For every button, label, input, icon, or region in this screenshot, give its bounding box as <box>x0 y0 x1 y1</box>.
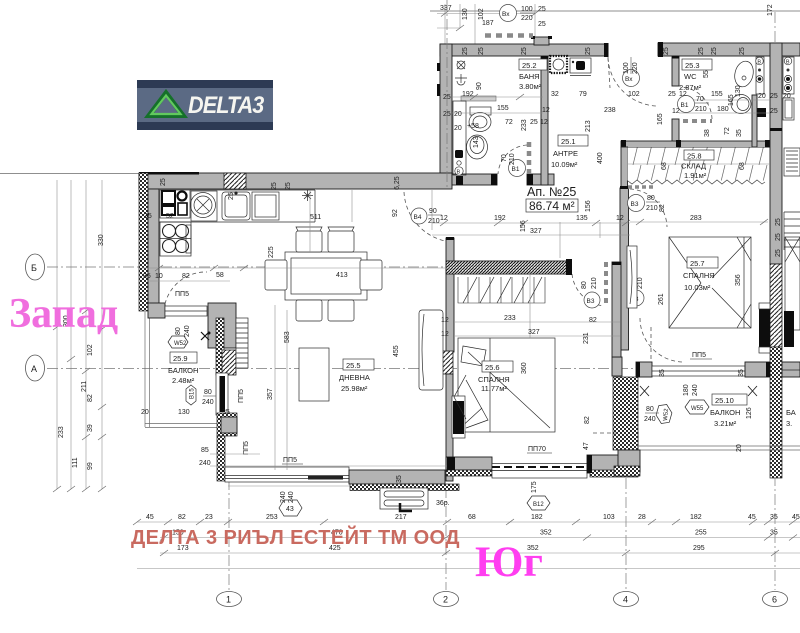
svg-text:52: 52 <box>166 213 174 220</box>
svg-text:B4: B4 <box>414 214 422 221</box>
svg-text:+58: +58 <box>467 123 479 130</box>
svg-text:12: 12 <box>540 119 548 126</box>
svg-text:231: 231 <box>583 332 590 344</box>
svg-text:211: 211 <box>81 381 88 392</box>
svg-text:25: 25 <box>538 6 546 13</box>
svg-text:238: 238 <box>604 107 616 114</box>
svg-text:Запад: Запад <box>9 291 118 337</box>
svg-text:35: 35 <box>396 475 403 483</box>
svg-text:352: 352 <box>540 530 552 537</box>
svg-text:35: 35 <box>770 514 778 521</box>
svg-text:70: 70 <box>696 96 704 103</box>
svg-text:B15: B15 <box>190 388 196 399</box>
svg-text:СПАЛНЯ: СПАЛНЯ <box>683 271 715 280</box>
svg-text:25: 25 <box>775 233 782 241</box>
svg-text:45: 45 <box>146 514 154 521</box>
svg-text:80: 80 <box>175 327 182 335</box>
svg-text:102: 102 <box>628 91 640 98</box>
svg-text:БАНЯ: БАНЯ <box>519 72 540 81</box>
svg-text:180: 180 <box>717 106 729 113</box>
svg-text:СПАЛНЯ: СПАЛНЯ <box>478 375 510 384</box>
svg-text:175: 175 <box>531 481 538 493</box>
svg-text:82: 82 <box>659 204 666 212</box>
svg-text:25.8: 25.8 <box>687 152 702 161</box>
svg-text:337: 337 <box>440 5 452 12</box>
svg-text:43: 43 <box>286 506 294 513</box>
svg-text:20: 20 <box>736 444 743 452</box>
svg-text:B1: B1 <box>512 166 520 173</box>
svg-text:511: 511 <box>310 214 321 221</box>
svg-text:192: 192 <box>462 91 474 98</box>
svg-text:82: 82 <box>182 273 190 280</box>
svg-text:165: 165 <box>728 94 735 106</box>
svg-text:W52: W52 <box>174 341 187 347</box>
svg-text:3.80м²: 3.80м² <box>519 82 542 91</box>
svg-text:210: 210 <box>509 153 516 165</box>
svg-text:1: 1 <box>226 595 231 605</box>
svg-text:35: 35 <box>659 369 666 377</box>
svg-text:25: 25 <box>585 47 592 55</box>
svg-text:ПП5: ПП5 <box>692 352 706 359</box>
svg-text:155: 155 <box>711 91 723 98</box>
svg-text:55: 55 <box>703 70 710 78</box>
svg-text:25.9: 25.9 <box>173 354 188 363</box>
svg-text:ДЕЛТА 3 РИЪЛ ЕСТЕЙТ ТМ ООД: ДЕЛТА 3 РИЪЛ ЕСТЕЙТ ТМ ООД <box>131 525 460 549</box>
svg-text:B1: B1 <box>681 102 689 109</box>
svg-text:35: 35 <box>770 530 778 537</box>
svg-text:80: 80 <box>646 406 654 413</box>
svg-text:233: 233 <box>504 315 516 322</box>
svg-text:155: 155 <box>497 105 509 112</box>
svg-text:А: А <box>31 364 37 374</box>
svg-text:25: 25 <box>160 178 167 186</box>
svg-text:25: 25 <box>521 47 528 55</box>
svg-text:240: 240 <box>184 325 191 337</box>
svg-text:12: 12 <box>616 215 624 222</box>
svg-text:182: 182 <box>690 514 702 521</box>
svg-text:СКЛАД: СКЛАД <box>681 162 706 171</box>
svg-text:99: 99 <box>87 462 94 470</box>
svg-text:28: 28 <box>638 514 646 521</box>
svg-text:35: 35 <box>144 213 152 220</box>
svg-text:12: 12 <box>441 317 449 324</box>
svg-text:20: 20 <box>454 125 462 132</box>
svg-text:25.98м²: 25.98м² <box>341 384 368 393</box>
svg-text:ПП5: ПП5 <box>283 457 297 464</box>
svg-text:72: 72 <box>505 119 513 126</box>
svg-text:130: 130 <box>178 409 190 416</box>
svg-text:220: 220 <box>632 62 639 74</box>
svg-text:Б: Б <box>31 263 37 273</box>
svg-text:583: 583 <box>284 331 291 343</box>
svg-text:38: 38 <box>704 129 711 137</box>
svg-text:25.2: 25.2 <box>522 61 537 70</box>
svg-text:39: 39 <box>87 424 94 432</box>
svg-text:25: 25 <box>711 47 718 55</box>
svg-text:47: 47 <box>583 442 590 450</box>
svg-text:25: 25 <box>770 108 778 115</box>
svg-text:210: 210 <box>591 277 598 289</box>
svg-text:B: B <box>786 59 790 65</box>
svg-text:143: 143 <box>473 136 480 148</box>
svg-text:82: 82 <box>589 317 597 324</box>
svg-text:10.03м²: 10.03м² <box>684 283 711 292</box>
svg-text:25: 25 <box>538 21 546 28</box>
svg-text:400: 400 <box>597 152 604 164</box>
svg-text:25: 25 <box>285 182 292 190</box>
svg-text:210: 210 <box>695 106 707 113</box>
svg-text:102: 102 <box>478 8 485 20</box>
svg-text:БА: БА <box>786 408 796 417</box>
svg-text:283: 283 <box>690 215 702 222</box>
svg-text:111: 111 <box>72 457 79 468</box>
svg-text:36р.: 36р. <box>436 500 450 507</box>
svg-text:220: 220 <box>521 15 533 22</box>
svg-text:92: 92 <box>392 209 399 217</box>
svg-text:217: 217 <box>395 514 407 521</box>
svg-text:БАЛКОН: БАЛКОН <box>710 408 740 417</box>
svg-text:25.6: 25.6 <box>485 363 500 372</box>
svg-text:12: 12 <box>440 215 448 222</box>
svg-text:80: 80 <box>647 195 655 202</box>
svg-text:БАЛКОН: БАЛКОН <box>168 366 198 375</box>
svg-text:210: 210 <box>637 277 644 289</box>
svg-text:240: 240 <box>288 491 295 503</box>
svg-text:25.1: 25.1 <box>561 137 576 146</box>
svg-text:182: 182 <box>531 514 543 521</box>
svg-text:100: 100 <box>623 62 630 74</box>
svg-text:240: 240 <box>644 416 656 423</box>
svg-text:72: 72 <box>724 127 731 135</box>
svg-text:25: 25 <box>663 47 670 55</box>
svg-text:10: 10 <box>155 273 163 280</box>
svg-text:35: 35 <box>143 273 151 280</box>
svg-text:327: 327 <box>528 329 540 336</box>
svg-text:11.77м²: 11.77м² <box>481 384 507 393</box>
svg-text:240: 240 <box>202 399 214 406</box>
svg-text:213: 213 <box>585 120 592 132</box>
svg-text:130: 130 <box>735 85 742 97</box>
svg-text:3.: 3. <box>786 419 792 428</box>
svg-text:25: 25 <box>478 47 485 55</box>
svg-text:455: 455 <box>393 345 400 357</box>
svg-text:WC: WC <box>684 72 697 81</box>
svg-text:68: 68 <box>468 514 476 521</box>
svg-text:240: 240 <box>199 460 211 467</box>
svg-text:295: 295 <box>693 545 705 552</box>
svg-text:6,25: 6,25 <box>394 176 401 190</box>
svg-text:165: 165 <box>657 113 664 125</box>
svg-text:210: 210 <box>428 218 440 225</box>
svg-text:240: 240 <box>280 491 287 503</box>
svg-text:210: 210 <box>646 205 658 212</box>
svg-text:25: 25 <box>228 192 235 200</box>
svg-text:B: B <box>757 59 761 65</box>
svg-text:12: 12 <box>679 91 687 98</box>
svg-text:25: 25 <box>668 91 676 98</box>
svg-text:240: 240 <box>692 384 699 396</box>
svg-text:ПП5: ПП5 <box>238 389 245 403</box>
svg-text:20: 20 <box>141 409 149 416</box>
svg-text:35: 35 <box>736 129 743 137</box>
svg-text:102: 102 <box>87 344 94 356</box>
svg-text:DELTA3: DELTA3 <box>188 91 265 118</box>
svg-text:233: 233 <box>58 426 65 438</box>
svg-text:360: 360 <box>521 362 528 374</box>
svg-text:23: 23 <box>205 514 213 521</box>
svg-text:25: 25 <box>770 93 778 100</box>
svg-text:70: 70 <box>501 154 508 162</box>
svg-text:АНТРЕ: АНТРЕ <box>553 149 578 158</box>
svg-text:12: 12 <box>542 107 550 114</box>
svg-text:90: 90 <box>476 82 483 90</box>
svg-text:B3: B3 <box>587 298 595 305</box>
svg-text:12: 12 <box>672 108 680 115</box>
svg-text:100: 100 <box>521 6 533 13</box>
svg-text:25: 25 <box>739 47 746 55</box>
svg-text:68: 68 <box>739 162 746 170</box>
svg-text:35: 35 <box>738 369 745 377</box>
svg-text:Вх: Вх <box>625 76 633 83</box>
svg-text:ПП5: ПП5 <box>175 291 189 298</box>
svg-text:6: 6 <box>772 595 777 605</box>
svg-text:ПП5: ПП5 <box>243 441 250 455</box>
svg-text:80: 80 <box>204 389 212 396</box>
svg-text:156: 156 <box>585 200 592 212</box>
svg-text:ПП70: ПП70 <box>528 446 546 453</box>
svg-text:B: B <box>457 170 461 176</box>
svg-text:32: 32 <box>551 91 559 98</box>
svg-text:192: 192 <box>494 215 506 222</box>
svg-text:25: 25 <box>775 218 782 226</box>
svg-text:10.09м²: 10.09м² <box>551 160 578 169</box>
svg-text:Ап. №25: Ап. №25 <box>527 185 576 199</box>
svg-text:327: 327 <box>530 228 542 235</box>
svg-text:126: 126 <box>746 407 753 419</box>
svg-text:85: 85 <box>201 447 209 454</box>
svg-text:Юг: Юг <box>475 539 543 586</box>
svg-text:25: 25 <box>271 182 278 190</box>
svg-text:356: 356 <box>735 274 742 286</box>
svg-text:80: 80 <box>581 281 588 289</box>
svg-text:45: 45 <box>748 514 756 521</box>
svg-text:156: 156 <box>520 220 527 232</box>
svg-text:25.5: 25.5 <box>346 361 361 370</box>
svg-text:79: 79 <box>579 91 587 98</box>
svg-text:ДНЕВНА: ДНЕВНА <box>339 373 370 382</box>
svg-text:25: 25 <box>530 119 538 126</box>
svg-text:90: 90 <box>429 208 437 215</box>
svg-text:1.91м²: 1.91м² <box>684 171 707 180</box>
svg-text:357: 357 <box>267 388 274 400</box>
svg-text:20: 20 <box>454 111 462 118</box>
svg-text:225: 225 <box>268 246 275 258</box>
svg-text:45: 45 <box>792 514 800 521</box>
svg-text:413: 413 <box>336 272 348 279</box>
svg-text:255: 255 <box>695 530 707 537</box>
svg-text:25: 25 <box>462 47 469 55</box>
svg-text:130: 130 <box>462 8 469 20</box>
svg-text:187: 187 <box>482 20 494 27</box>
svg-text:3.21м²: 3.21м² <box>714 419 737 428</box>
svg-text:B3: B3 <box>631 201 639 208</box>
svg-text:25: 25 <box>775 249 782 257</box>
svg-text:82: 82 <box>584 416 591 424</box>
svg-text:25.10: 25.10 <box>715 396 734 405</box>
svg-text:35: 35 <box>222 409 230 416</box>
svg-text:Вх: Вх <box>502 11 510 18</box>
svg-text:330: 330 <box>98 234 105 246</box>
svg-text:180: 180 <box>683 384 690 396</box>
svg-text:261: 261 <box>658 293 665 305</box>
svg-text:B12: B12 <box>533 502 544 508</box>
svg-text:82: 82 <box>178 514 186 521</box>
svg-text:86.74 м²: 86.74 м² <box>529 199 575 213</box>
svg-text:25.7: 25.7 <box>690 259 705 268</box>
svg-text:103: 103 <box>603 514 615 521</box>
svg-text:12: 12 <box>441 331 449 338</box>
svg-text:135: 135 <box>576 215 588 222</box>
svg-text:W55: W55 <box>691 406 704 412</box>
svg-text:25: 25 <box>698 47 705 55</box>
svg-text:233: 233 <box>521 119 528 131</box>
svg-text:253: 253 <box>266 514 278 521</box>
svg-text:2.48м²: 2.48м² <box>172 376 195 385</box>
svg-text:82: 82 <box>87 394 94 402</box>
svg-text:25.3: 25.3 <box>685 61 700 70</box>
svg-text:2: 2 <box>443 595 448 605</box>
svg-text:172: 172 <box>767 4 774 16</box>
svg-text:W52: W52 <box>663 408 670 421</box>
svg-text:58: 58 <box>216 272 224 279</box>
svg-text:20: 20 <box>783 93 791 100</box>
svg-text:68: 68 <box>661 162 668 170</box>
svg-text:20: 20 <box>758 93 766 100</box>
svg-text:4: 4 <box>623 595 628 605</box>
